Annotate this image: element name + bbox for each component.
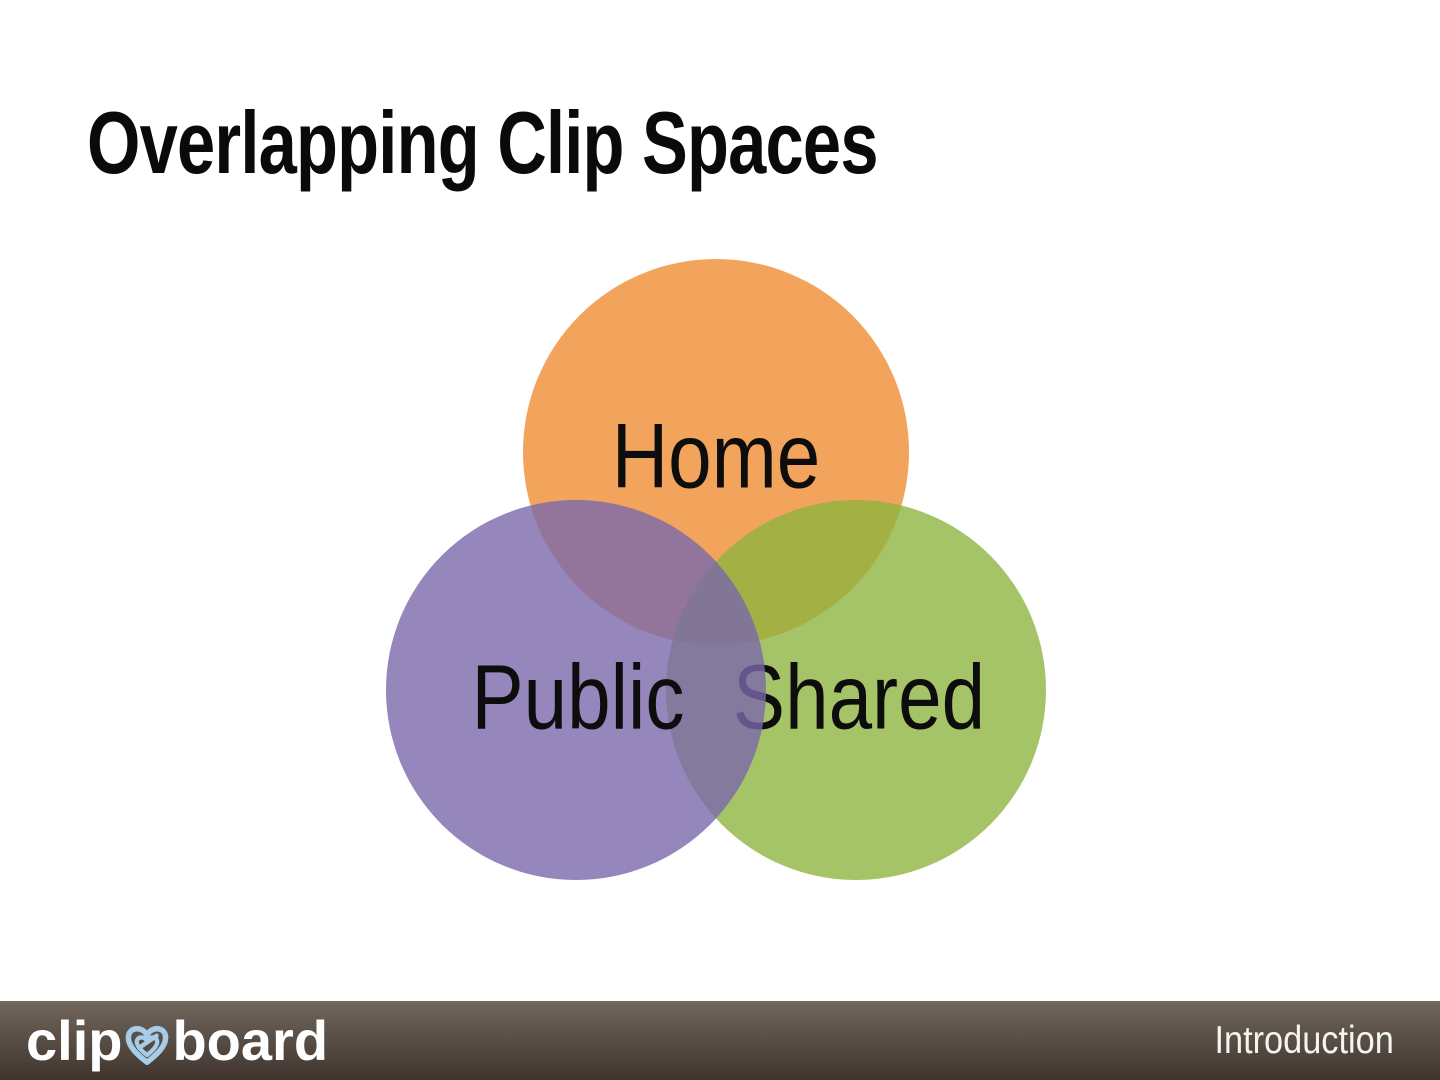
brand-logo: clip board <box>26 1013 328 1069</box>
venn-label-home: Home <box>612 405 821 510</box>
heart-outline <box>129 1028 166 1062</box>
venn-label-shared: Shared <box>733 646 985 751</box>
venn-label-public: Public <box>472 646 685 751</box>
venn-diagram: Home Shared Public <box>0 0 1440 1080</box>
footer-bar: clip board Introduction <box>0 1001 1440 1080</box>
heart-paperclip-icon <box>123 1018 171 1066</box>
footer-section-label: Introduction <box>1215 1019 1394 1063</box>
brand-text-board: board <box>172 1013 328 1069</box>
slide: Overlapping Clip Spaces Home Shared Publ… <box>0 0 1440 1080</box>
brand-text-clip: clip <box>26 1013 122 1069</box>
